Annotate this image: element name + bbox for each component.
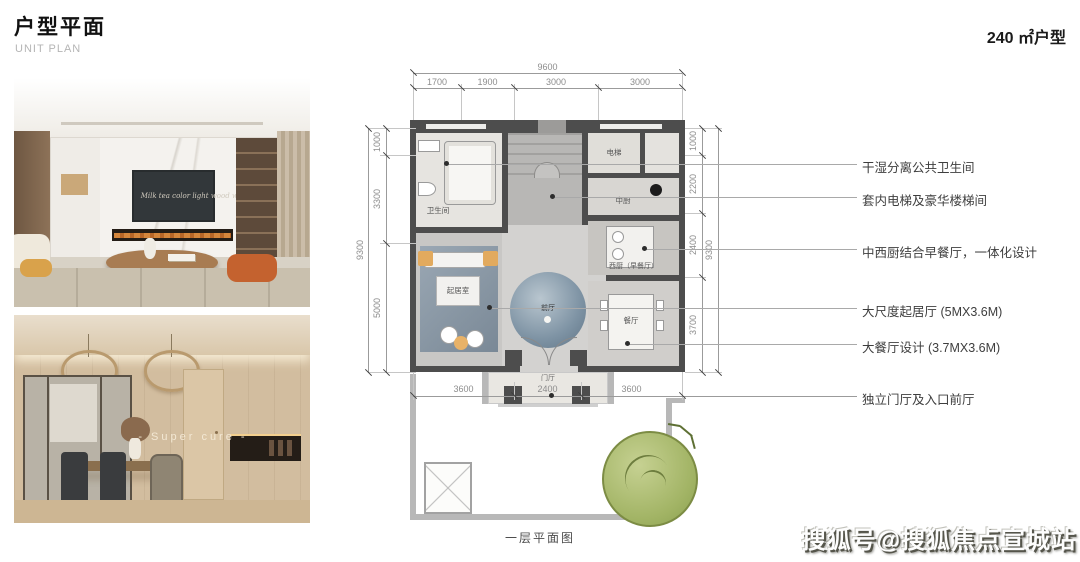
annotation-elevator-stair: 套内电梯及豪华楼梯间 (862, 190, 987, 209)
plan-caption: 一层平面图 (430, 529, 650, 546)
annotation-living: 大尺度起居厅 (5MX3.6M) (862, 301, 1002, 320)
annotation-entry: 独立门厅及入口前厅 (862, 389, 975, 408)
leader-line-2 (553, 197, 857, 198)
leader-line-1 (447, 164, 857, 165)
leader-line-3 (645, 249, 857, 250)
leader-dot-5 (625, 341, 630, 346)
leader-dot-1 (444, 161, 449, 166)
annotation-kitchen: 中西厨结合早餐厅，一体化设计 (862, 242, 1037, 261)
leader-line-4 (490, 308, 857, 309)
leader-dot-3 (642, 246, 647, 251)
leader-dot-4 (487, 305, 492, 310)
leader-dot-2 (550, 194, 555, 199)
annotation-bathroom: 干湿分离公共卫生间 (862, 157, 975, 176)
watermark: 搜狐号@搜狐焦点宣城站 (802, 520, 1076, 555)
annotation-dining: 大餐厅设计 (3.7MX3.6M) (862, 337, 1000, 356)
leader-dot-6 (549, 393, 554, 398)
leader-line-5 (628, 344, 857, 345)
annotations: 干湿分离公共卫生间 套内电梯及豪华楼梯间 中西厨结合早餐厅，一体化设计 大尺度起… (0, 0, 1080, 562)
